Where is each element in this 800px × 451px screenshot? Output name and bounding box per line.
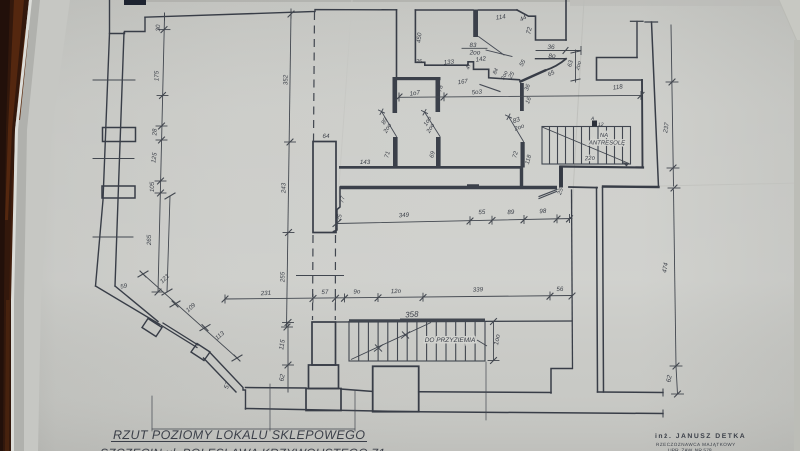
svg-text:255: 255: [280, 271, 287, 283]
svg-text:142: 142: [475, 55, 487, 63]
svg-text:RZECZOZNAWCA MAJĄTKOWY: RZECZOZNAWCA MAJĄTKOWY: [656, 442, 736, 447]
svg-text:231: 231: [260, 290, 272, 298]
svg-text:339: 339: [473, 286, 484, 294]
svg-text:12o: 12o: [391, 288, 402, 296]
svg-text:ANTRESOLĘ: ANTRESOLĘ: [588, 140, 626, 147]
svg-text:243: 243: [281, 182, 288, 194]
svg-text:56: 56: [556, 286, 564, 293]
svg-text:105: 105: [149, 181, 156, 192]
svg-text:143: 143: [360, 159, 371, 166]
svg-text:125: 125: [150, 152, 158, 164]
svg-text:A: A: [590, 116, 595, 122]
svg-text:358: 358: [405, 310, 419, 320]
svg-text:175: 175: [154, 70, 161, 81]
svg-text:349: 349: [398, 212, 409, 220]
svg-text:167: 167: [457, 78, 469, 86]
svg-text:inż. JANUSZ DETKA: inż. JANUSZ DETKA: [655, 433, 746, 440]
svg-text:1o7: 1o7: [409, 89, 421, 97]
svg-text:RZUT POZIOMY LOKALU SKLEPOWEGO: RZUT POZIOMY LOKALU SKLEPOWEGO: [113, 428, 365, 442]
svg-text:89: 89: [507, 209, 515, 217]
svg-text:22o: 22o: [584, 155, 596, 163]
svg-text:NA: NA: [600, 132, 608, 139]
svg-text:5o3: 5o3: [471, 88, 483, 96]
svg-text:9o: 9o: [353, 288, 361, 295]
svg-text:DO PRZYZIEMIA: DO PRZYZIEMIA: [425, 337, 476, 344]
svg-text:55: 55: [478, 209, 486, 217]
svg-text:30: 30: [155, 24, 162, 31]
svg-text:352: 352: [283, 74, 290, 85]
svg-text:8o: 8o: [548, 53, 556, 60]
svg-text:450: 450: [416, 32, 424, 43]
svg-text:SZCZECIN ul. BOLESŁAWA KRZYWOU: SZCZECIN ul. BOLESŁAWA KRZYWOUSTEGO 71: [100, 446, 385, 451]
svg-text:118: 118: [612, 83, 623, 91]
svg-text:114: 114: [495, 13, 506, 21]
svg-text:36: 36: [547, 44, 555, 51]
svg-text:64: 64: [323, 133, 330, 140]
svg-text:57: 57: [321, 289, 329, 296]
svg-text:98: 98: [539, 208, 547, 216]
svg-text:28: 28: [152, 128, 159, 136]
svg-text:265: 265: [146, 234, 153, 246]
svg-text:133: 133: [443, 58, 455, 66]
svg-text:12: 12: [598, 122, 604, 128]
svg-text:83: 83: [470, 42, 477, 49]
svg-text:25: 25: [415, 59, 423, 65]
